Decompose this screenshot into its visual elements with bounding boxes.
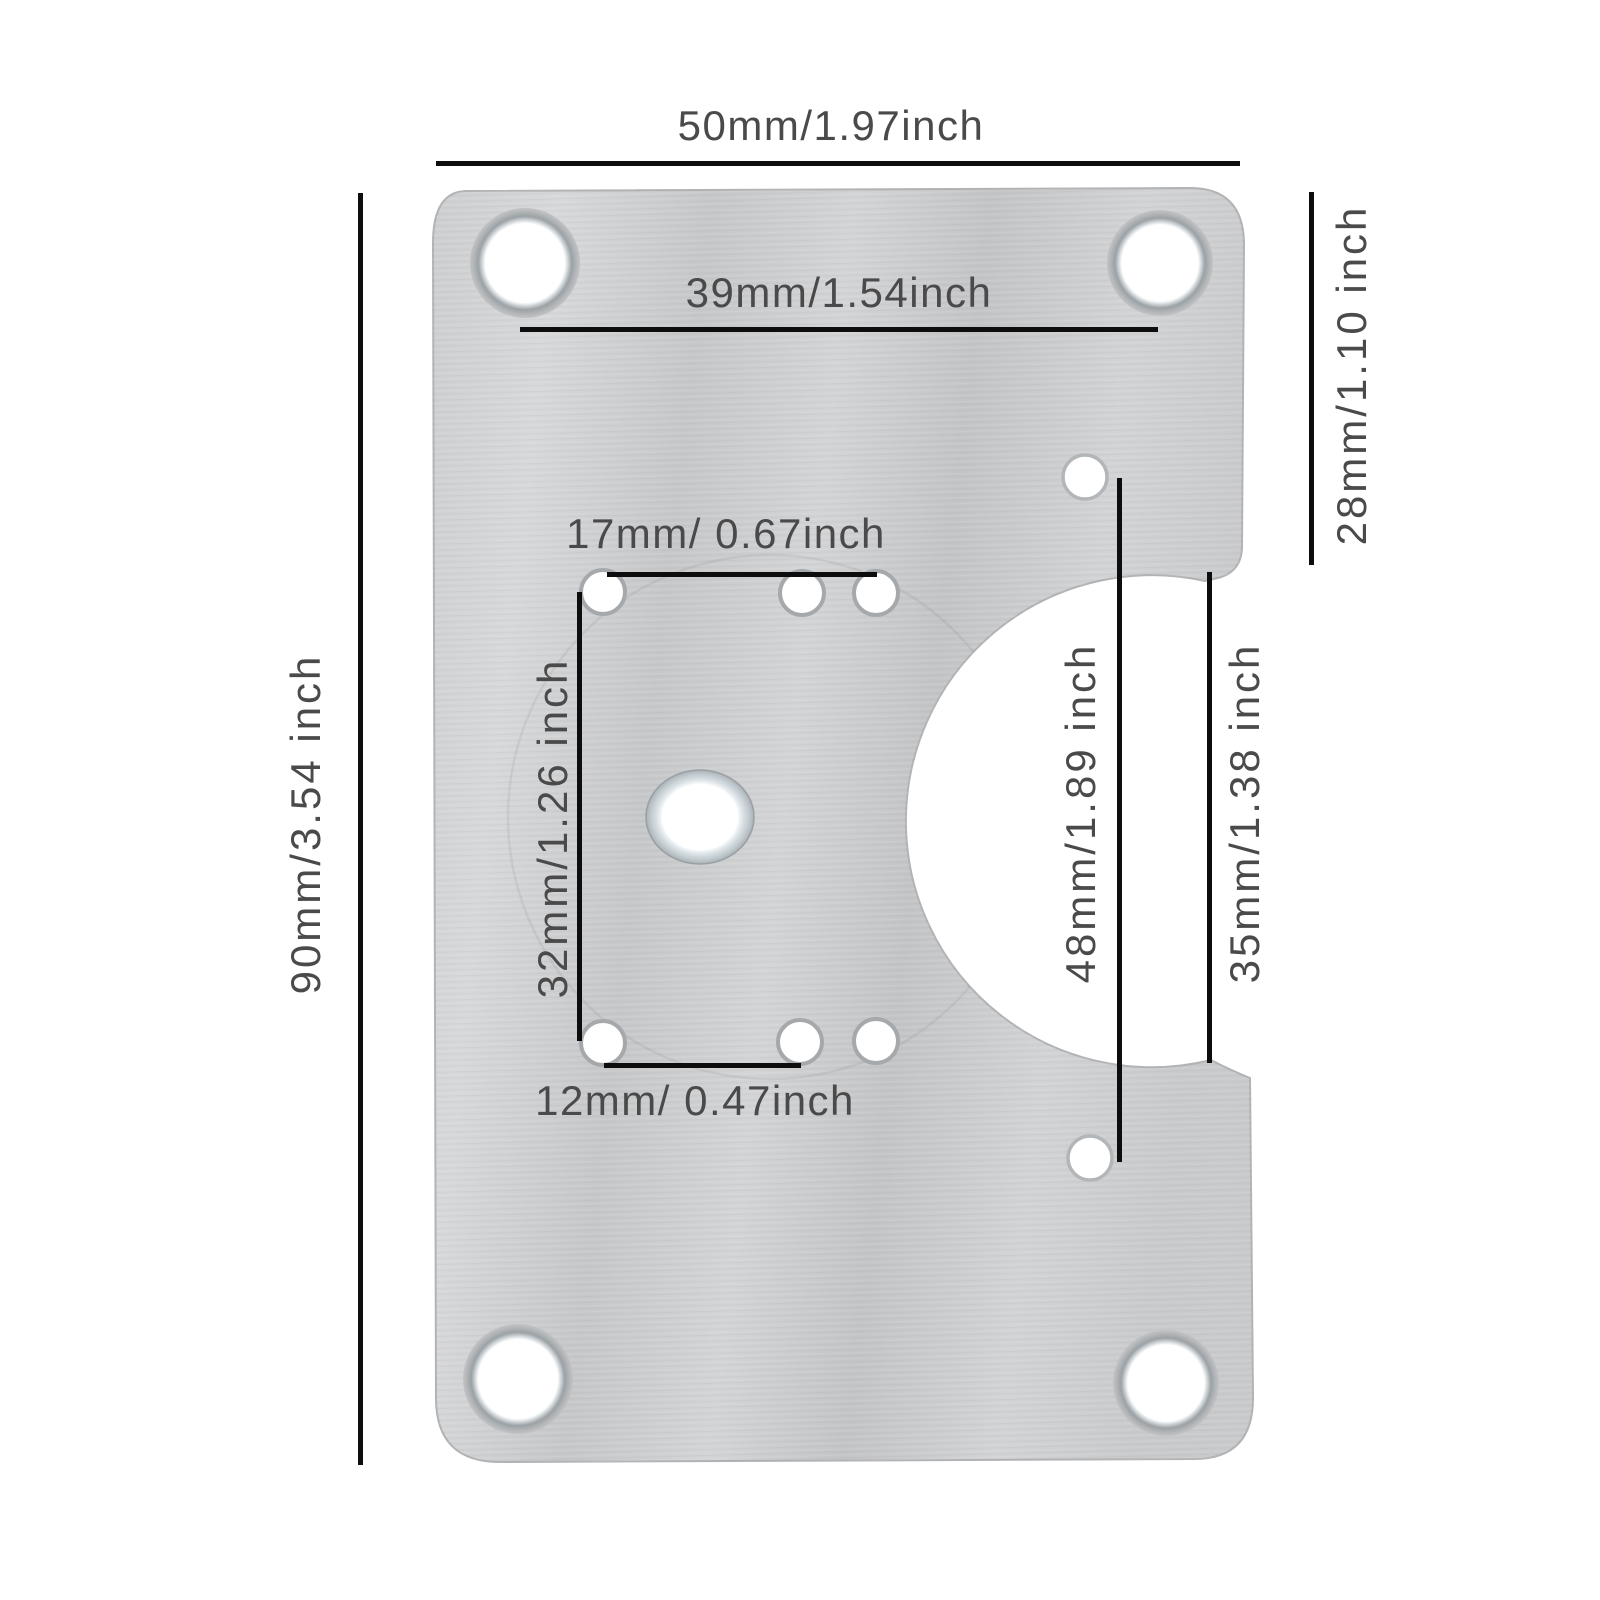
dim-label-left-height: 90mm/3.54 inch	[285, 654, 327, 995]
screw-hole-bottom-right	[854, 1019, 898, 1063]
side-hole-top	[1063, 455, 1107, 499]
dim-label-side-hole-span: 48mm/1.89 inch	[1060, 643, 1102, 984]
corner-hole-bottom-right	[1113, 1330, 1219, 1436]
dim-line-top-hole-span	[520, 327, 1158, 332]
dim-line-vertical-span	[577, 592, 582, 1041]
corner-hole-top-right	[1107, 210, 1213, 316]
dim-label-top-hole-span: 39mm/1.54inch	[686, 272, 993, 314]
center-countersunk-hole	[646, 770, 754, 864]
dim-label-small-bottom-span: 12mm/ 0.47inch	[535, 1080, 855, 1122]
product-dimension-diagram: 50mm/1.97inch 39mm/1.54inch 17mm/ 0.67in…	[0, 0, 1600, 1600]
screw-hole-top-right	[854, 571, 898, 615]
dim-line-side-hole-span	[1117, 478, 1122, 1162]
screw-hole-bottom-mid	[778, 1020, 822, 1064]
dim-line-cutout-height	[1207, 572, 1212, 1063]
dim-line-small-top-span	[607, 572, 877, 577]
side-hole-bottom	[1068, 1136, 1112, 1180]
dim-line-left-height	[358, 193, 363, 1465]
dim-label-right-tab-height: 28mm/1.10 inch	[1331, 205, 1373, 546]
dim-line-right-tab-height	[1309, 192, 1314, 565]
screw-hole-bottom-left	[581, 1021, 625, 1065]
dim-label-top-width: 50mm/1.97inch	[678, 105, 985, 147]
dim-line-top-width	[436, 161, 1240, 166]
corner-hole-bottom-left	[463, 1324, 573, 1434]
dim-line-small-bottom-span	[604, 1063, 801, 1068]
screw-hole-top-mid	[780, 571, 824, 615]
corner-hole-top-left	[470, 208, 580, 318]
dim-label-small-top-span: 17mm/ 0.67inch	[566, 513, 886, 555]
dim-label-cutout-height: 35mm/1.38 inch	[1224, 643, 1266, 984]
dim-label-vertical-span: 32mm/1.26 inch	[532, 658, 574, 999]
